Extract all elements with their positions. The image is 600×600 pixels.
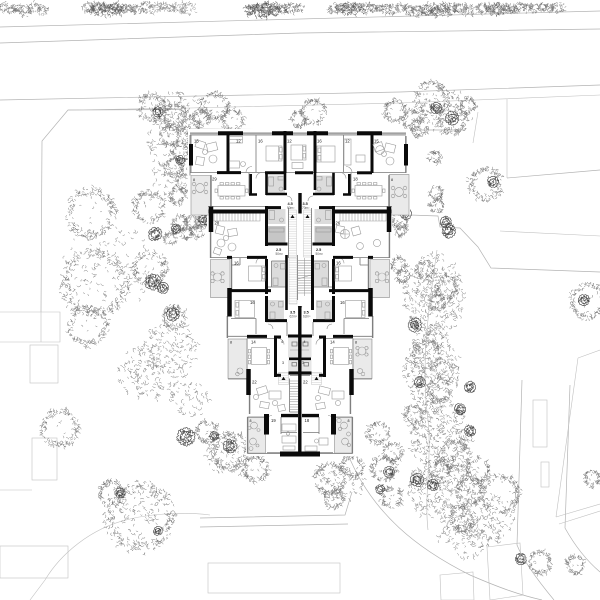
svg-text:18: 18 [353, 177, 358, 182]
svg-text:4: 4 [304, 340, 306, 344]
svg-text:8: 8 [348, 419, 350, 423]
svg-text:3: 3 [282, 361, 284, 365]
svg-text:15: 15 [374, 139, 379, 144]
svg-text:8: 8 [355, 341, 357, 345]
svg-text:14: 14 [330, 340, 335, 345]
svg-text:16: 16 [234, 261, 239, 266]
svg-text:22: 22 [252, 380, 257, 385]
svg-text:50m²: 50m² [276, 252, 283, 256]
svg-text:8: 8 [230, 341, 232, 345]
svg-text:18: 18 [305, 418, 310, 423]
svg-text:16: 16 [258, 139, 263, 144]
svg-text:8: 8 [250, 419, 252, 423]
svg-text:28: 28 [215, 221, 220, 226]
svg-text:16: 16 [336, 261, 341, 266]
svg-text:8: 8 [193, 178, 195, 182]
svg-text:16: 16 [340, 300, 345, 305]
svg-text:62m²: 62m² [303, 315, 310, 319]
svg-text:15: 15 [194, 139, 199, 144]
svg-text:16: 16 [317, 139, 322, 144]
svg-text:50m²: 50m² [316, 252, 323, 256]
svg-text:26: 26 [336, 221, 341, 226]
svg-text:90m²: 90m² [287, 206, 294, 210]
svg-text:19: 19 [271, 418, 276, 423]
svg-text:29: 29 [212, 177, 217, 182]
svg-text:8: 8 [391, 178, 393, 182]
svg-text:62m²: 62m² [290, 315, 297, 319]
svg-text:4: 4 [281, 340, 283, 344]
svg-text:12: 12 [345, 139, 350, 144]
svg-text:14: 14 [251, 340, 256, 345]
svg-text:3: 3 [302, 361, 304, 365]
svg-text:12: 12 [236, 139, 241, 144]
svg-text:12: 12 [287, 139, 292, 144]
svg-text:22: 22 [303, 380, 308, 385]
svg-text:70m²: 70m² [302, 206, 309, 210]
svg-text:16: 16 [250, 300, 255, 305]
